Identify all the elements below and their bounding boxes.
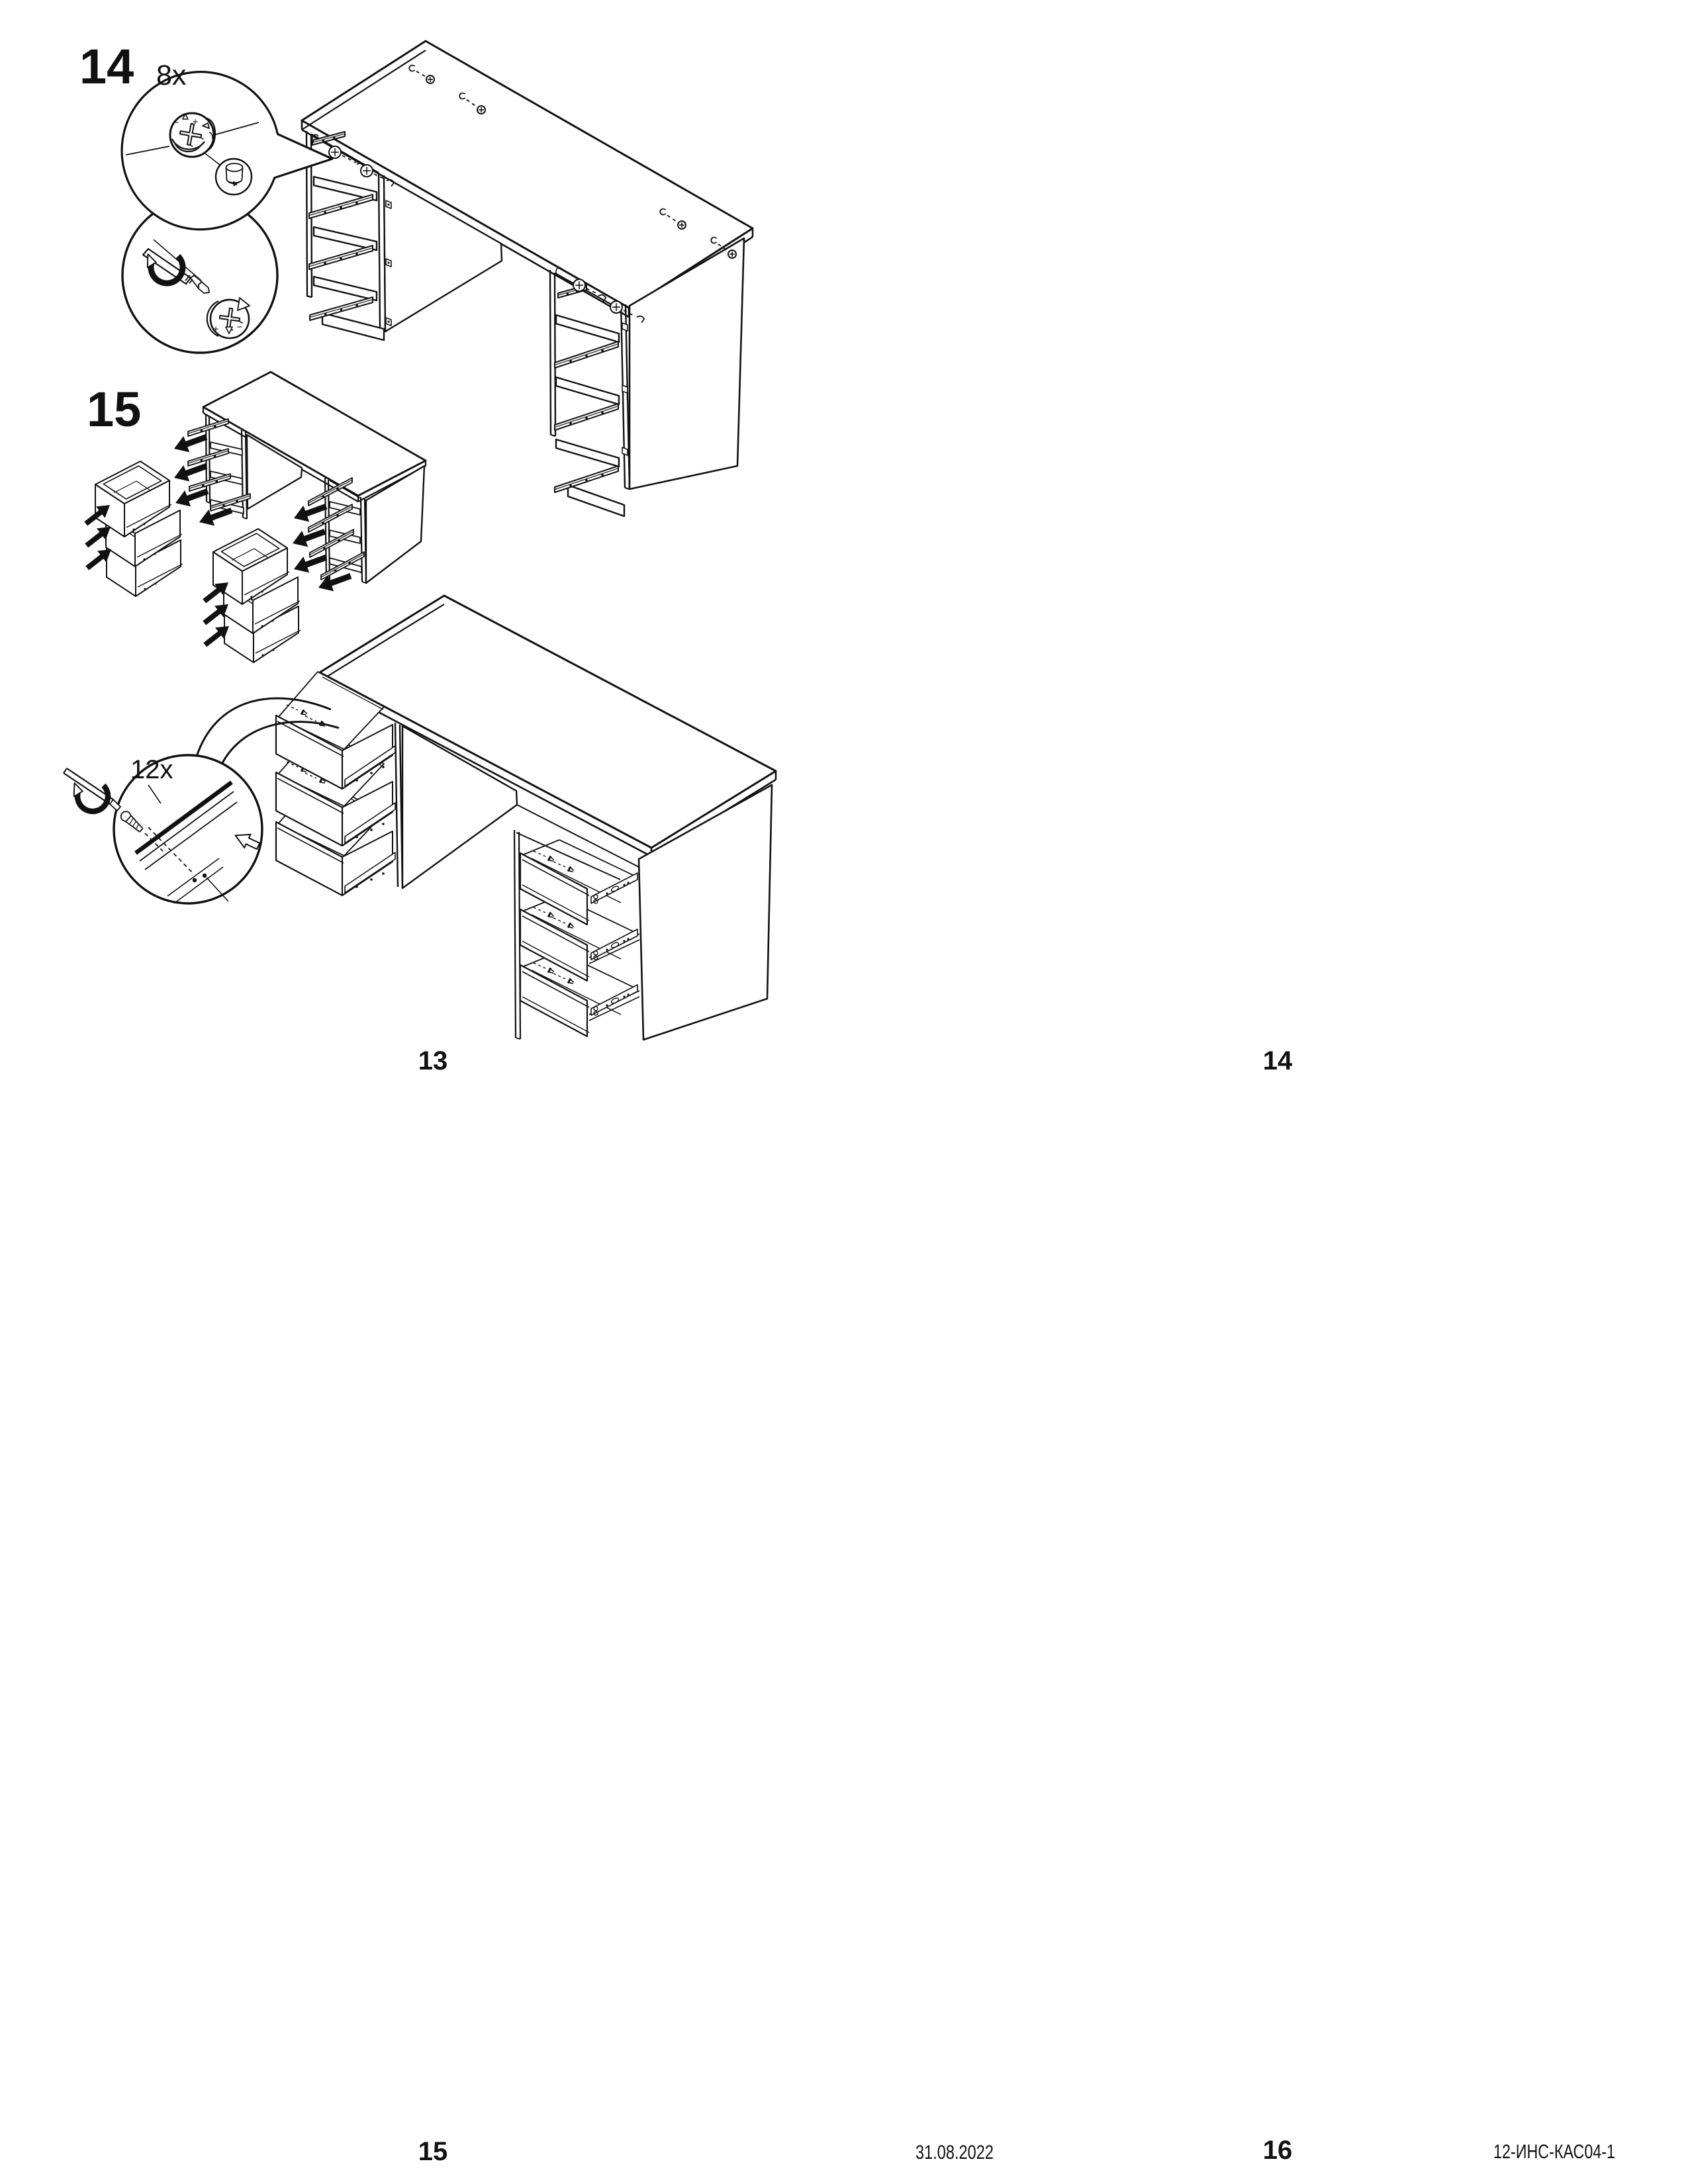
svg-text:13: 13: [418, 1046, 448, 1075]
svg-text:−: −: [173, 117, 179, 128]
svg-text:+: +: [193, 116, 199, 128]
svg-text:16: 16: [1263, 2136, 1293, 2165]
svg-text:8x: 8x: [156, 60, 187, 91]
svg-text:12-ИНС-КАС04-1: 12-ИНС-КАС04-1: [1493, 2141, 1615, 2163]
svg-text:−: −: [237, 322, 243, 333]
svg-text:+: +: [213, 324, 219, 335]
svg-text:15: 15: [87, 382, 141, 437]
svg-text:15: 15: [418, 2137, 448, 2166]
svg-text:14: 14: [79, 39, 134, 94]
svg-text:14: 14: [1263, 1046, 1293, 1075]
svg-text:31.08.2022: 31.08.2022: [915, 2142, 994, 2163]
svg-text:12x: 12x: [130, 755, 173, 784]
